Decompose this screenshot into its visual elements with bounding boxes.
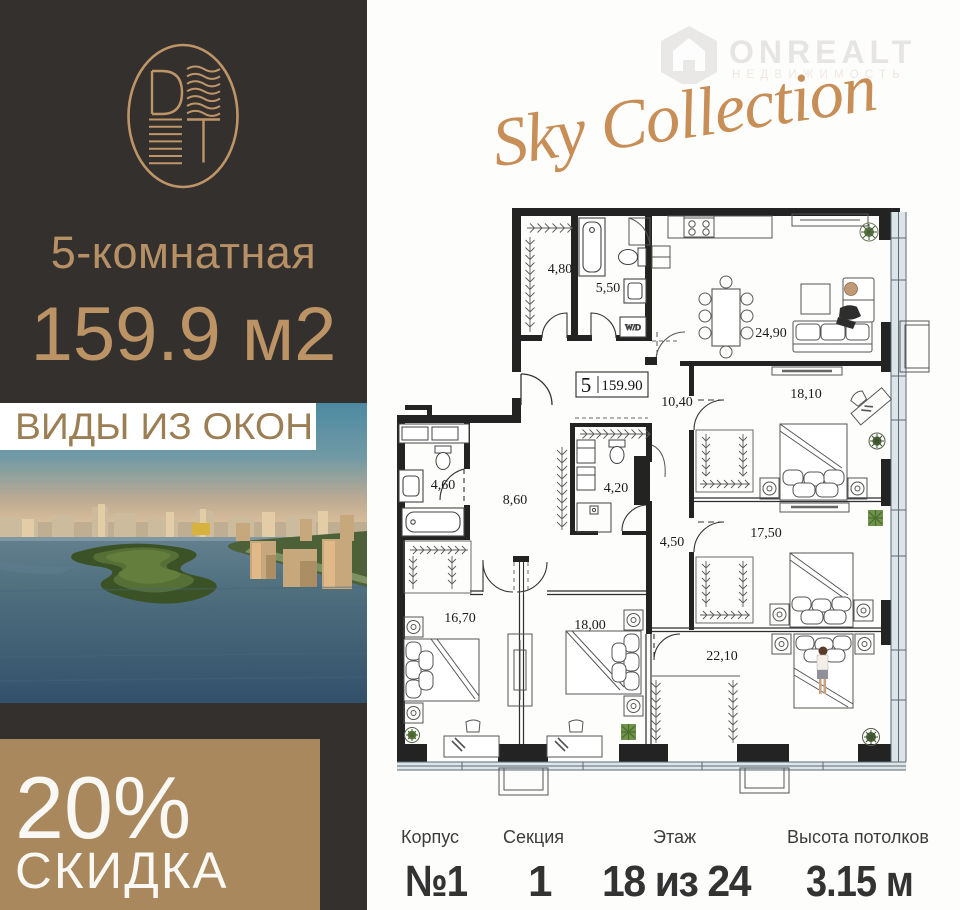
svg-text:10,40: 10,40: [661, 395, 693, 410]
svg-text:W/D: W/D: [625, 323, 641, 332]
svg-text:24,90: 24,90: [755, 326, 787, 341]
svg-text:159.90: 159.90: [601, 378, 642, 394]
svg-text:16,70: 16,70: [444, 611, 476, 626]
svg-text:17,50: 17,50: [750, 526, 782, 541]
svg-text:4,60: 4,60: [431, 478, 456, 493]
svg-text:22,10: 22,10: [706, 649, 738, 664]
svg-text:4,20: 4,20: [604, 481, 629, 496]
svg-text:5,50: 5,50: [596, 281, 621, 296]
svg-text:5: 5: [581, 373, 592, 397]
svg-text:4,80: 4,80: [548, 262, 573, 277]
svg-text:8,60: 8,60: [503, 493, 528, 508]
svg-text:4,50: 4,50: [660, 535, 685, 550]
svg-text:18,10: 18,10: [790, 387, 822, 402]
